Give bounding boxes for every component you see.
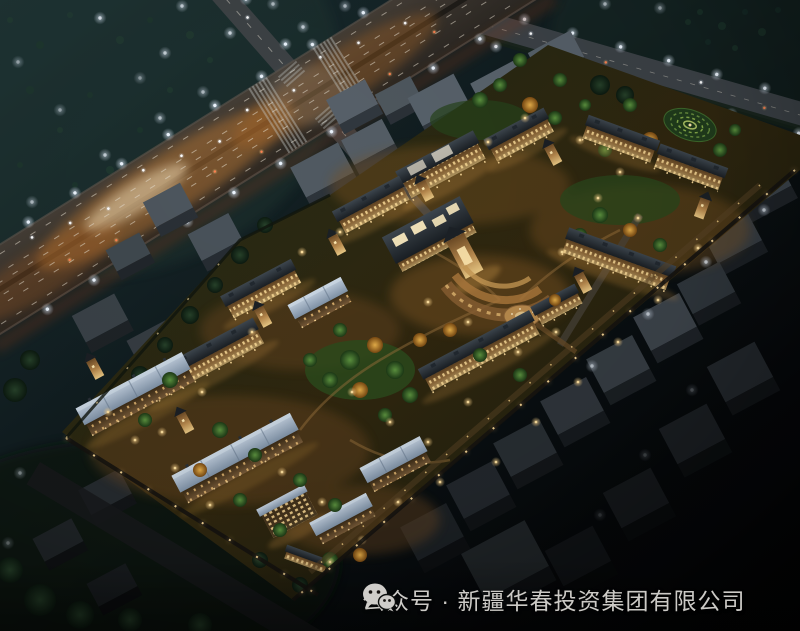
scene-canvas (0, 0, 800, 631)
caption-text: 公众号 · 新疆华春投资集团有限公司 (362, 582, 745, 616)
vignette-overlay (0, 0, 800, 631)
night-aerial-rendering: 公众号 · 新疆华春投资集团有限公司 (0, 0, 800, 631)
caption-bar: 公众号 · 新疆华春投资集团有限公司 (362, 582, 745, 616)
wechat-icon (362, 582, 396, 612)
